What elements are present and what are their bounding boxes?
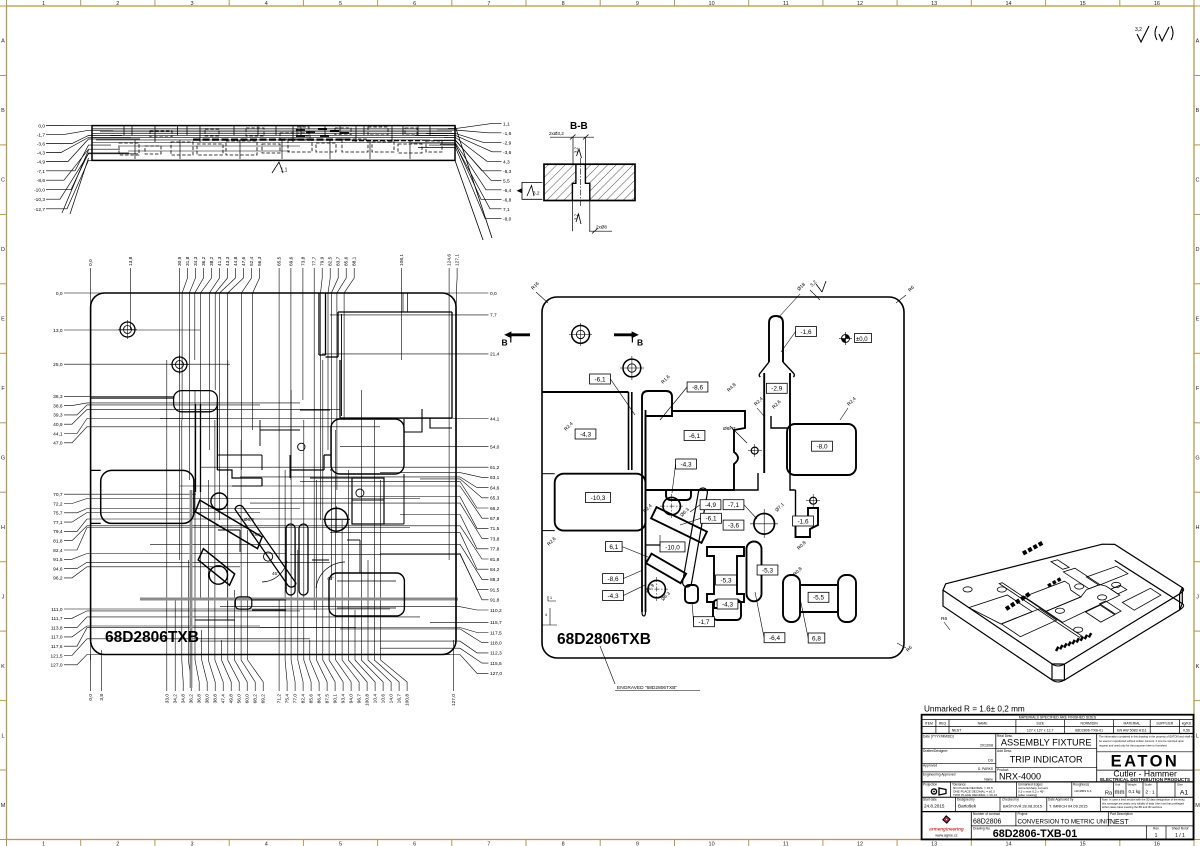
svg-text:Roughness: Roughness bbox=[1073, 782, 1090, 786]
svg-text:-4,3: -4,3 bbox=[607, 593, 618, 600]
svg-text:115,7: 115,7 bbox=[490, 620, 502, 626]
svg-text:71,5: 71,5 bbox=[490, 526, 500, 532]
svg-text:-6,1: -6,1 bbox=[705, 516, 716, 523]
svg-text:ENGRAVED "68D2806TXB": ENGRAVED "68D2806TXB" bbox=[617, 685, 677, 691]
svg-text:-8,0: -8,0 bbox=[816, 444, 827, 451]
svg-text:H: H bbox=[1, 525, 5, 531]
svg-text:1,1: 1,1 bbox=[281, 168, 288, 174]
svg-text:NEST: NEST bbox=[952, 728, 962, 732]
svg-text:88,1: 88,1 bbox=[352, 256, 358, 266]
svg-text:10,6: 10,6 bbox=[381, 694, 387, 704]
svg-text:NORM/DIN: NORM/DIN bbox=[1081, 721, 1099, 725]
svg-text:-7,1: -7,1 bbox=[37, 169, 46, 175]
svg-text:87,5: 87,5 bbox=[325, 694, 331, 704]
svg-text:36,3: 36,3 bbox=[53, 394, 63, 400]
svg-text:111,7: 111,7 bbox=[51, 616, 63, 622]
svg-text:B: B bbox=[1, 108, 5, 114]
svg-text:68,2: 68,2 bbox=[253, 694, 259, 704]
svg-text:C: C bbox=[1196, 178, 1200, 184]
svg-text:117,5: 117,5 bbox=[490, 630, 502, 636]
svg-text:this message are yearly on: this message are yearly only validity of… bbox=[1102, 801, 1184, 805]
svg-text:3: 3 bbox=[190, 1, 193, 7]
svg-text:REQ: REQ bbox=[939, 721, 947, 725]
svg-text:-7,1: -7,1 bbox=[728, 502, 739, 509]
svg-text:-1,6: -1,6 bbox=[800, 329, 811, 336]
svg-text:SUPPLIER: SUPPLIER bbox=[1156, 721, 1173, 725]
svg-text:5: 5 bbox=[339, 1, 342, 7]
svg-text:-4,3: -4,3 bbox=[680, 461, 691, 468]
svg-text:8: 8 bbox=[562, 842, 565, 846]
svg-text:4,3: 4,3 bbox=[503, 159, 510, 165]
svg-text:6: 6 bbox=[413, 842, 416, 846]
svg-text:64,6: 64,6 bbox=[490, 485, 500, 491]
svg-text:9: 9 bbox=[636, 1, 639, 7]
svg-text:-5,3: -5,3 bbox=[720, 577, 731, 584]
svg-text:127,0: 127,0 bbox=[50, 663, 62, 669]
svg-text:-3,6: -3,6 bbox=[37, 142, 46, 148]
svg-text:36,2: 36,2 bbox=[189, 694, 195, 704]
svg-text:Drafter/Designer:: Drafter/Designer: bbox=[923, 749, 948, 753]
svg-text:10: 10 bbox=[709, 1, 715, 7]
svg-text:-10,0: -10,0 bbox=[34, 188, 45, 194]
svg-text:14: 14 bbox=[1005, 1, 1011, 7]
svg-text:44,1: 44,1 bbox=[490, 416, 500, 422]
svg-text:H: H bbox=[1196, 525, 1200, 531]
svg-text:33,0: 33,0 bbox=[164, 694, 170, 704]
svg-text:13,8: 13,8 bbox=[128, 256, 134, 266]
svg-text:70,7: 70,7 bbox=[53, 492, 63, 498]
svg-text:Ø6H7: Ø6H7 bbox=[723, 426, 736, 432]
svg-text:24.8.2015: 24.8.2015 bbox=[924, 804, 945, 809]
svg-text:16: 16 bbox=[1154, 842, 1160, 846]
svg-text:47,4: 47,4 bbox=[221, 694, 227, 704]
svg-text:www.agme.cz: www.agme.cz bbox=[935, 834, 957, 838]
svg-text:12: 12 bbox=[857, 842, 863, 846]
svg-text:Name: Name bbox=[984, 778, 993, 782]
svg-text:ELECTRICAL DISTRIBUTION PRODUC: ELECTRICAL DISTRIBUTION PRODUCTS bbox=[1100, 777, 1190, 782]
svg-text:A: A bbox=[1, 39, 5, 45]
svg-text:67,8: 67,8 bbox=[490, 516, 500, 522]
svg-text:Rev: Rev bbox=[1153, 826, 1159, 830]
svg-text:5: 5 bbox=[339, 842, 342, 846]
svg-text:31,8: 31,8 bbox=[185, 256, 191, 266]
svg-text:3,2: 3,2 bbox=[1135, 27, 1142, 33]
svg-text:14: 14 bbox=[1005, 842, 1011, 846]
svg-text:-8,0: -8,0 bbox=[503, 216, 512, 222]
svg-text:-1,6: -1,6 bbox=[503, 131, 512, 137]
svg-text:-1,6: -1,6 bbox=[797, 518, 808, 525]
svg-text:-4,9: -4,9 bbox=[37, 160, 46, 166]
svg-text:D. PARKS: D. PARKS bbox=[978, 767, 994, 771]
svg-text:94,6: 94,6 bbox=[53, 566, 63, 572]
svg-text:mill ØRS 6,3: mill ØRS 6,3 bbox=[1074, 789, 1092, 793]
svg-text:73,8: 73,8 bbox=[300, 256, 306, 266]
svg-text:8: 8 bbox=[562, 1, 565, 7]
svg-text:93,4: 93,4 bbox=[341, 694, 347, 704]
svg-text:38,0: 38,0 bbox=[205, 694, 211, 704]
svg-text:84,2: 84,2 bbox=[490, 567, 500, 573]
svg-text:TRIP INDICATOR: TRIP INDICATOR bbox=[1010, 754, 1083, 764]
svg-text:117,6: 117,6 bbox=[51, 644, 63, 650]
svg-text:Project: Project bbox=[1018, 812, 1028, 816]
svg-text:-6,4: -6,4 bbox=[769, 635, 780, 642]
svg-text:127,0: 127,0 bbox=[451, 694, 457, 706]
svg-text:-10,3: -10,3 bbox=[591, 495, 606, 502]
svg-text:81,8: 81,8 bbox=[53, 539, 63, 545]
svg-text:-4,3: -4,3 bbox=[722, 601, 733, 608]
svg-text:armengineering: armengineering bbox=[929, 827, 964, 832]
svg-text:13: 13 bbox=[931, 842, 937, 846]
svg-text:41,3: 41,3 bbox=[217, 256, 223, 266]
svg-text:9: 9 bbox=[636, 842, 639, 846]
svg-text:D: D bbox=[1196, 247, 1200, 253]
svg-text:TWO PLACE DECIMAL = ±0,13: TWO PLACE DECIMAL = ±0,13 bbox=[953, 793, 997, 797]
svg-text:16,7: 16,7 bbox=[397, 694, 403, 704]
svg-text:91,8: 91,8 bbox=[490, 598, 500, 604]
svg-text:124,6: 124,6 bbox=[447, 254, 453, 266]
svg-text:71,2: 71,2 bbox=[277, 694, 283, 704]
svg-text:-2,9: -2,9 bbox=[503, 140, 512, 146]
svg-text:Add Desc.: Add Desc. bbox=[997, 749, 1012, 753]
svg-text:Bartošek: Bartošek bbox=[958, 804, 977, 809]
svg-text:56,3: 56,3 bbox=[257, 256, 263, 266]
svg-text:1: 1 bbox=[42, 1, 45, 7]
svg-text:77,7: 77,7 bbox=[312, 256, 318, 266]
svg-text:63,1: 63,1 bbox=[490, 475, 500, 481]
svg-text:C: C bbox=[1, 178, 5, 184]
svg-text:B: B bbox=[502, 338, 508, 348]
svg-text:L: L bbox=[1, 733, 4, 739]
svg-text:J: J bbox=[1196, 594, 1199, 600]
svg-text:-12,7: -12,7 bbox=[34, 207, 45, 213]
svg-text:73,8: 73,8 bbox=[490, 536, 500, 542]
svg-text:Date Approved by: Date Approved by bbox=[1048, 798, 1074, 802]
svg-text:-8,6: -8,6 bbox=[692, 384, 703, 391]
svg-text:7: 7 bbox=[487, 1, 490, 7]
svg-text:3,2: 3,2 bbox=[574, 214, 579, 220]
svg-text:39,3: 39,3 bbox=[53, 413, 63, 419]
svg-text:68D2806TXB: 68D2806TXB bbox=[105, 629, 199, 646]
svg-text:111,0: 111,0 bbox=[51, 607, 63, 613]
svg-text:-3,6: -3,6 bbox=[503, 150, 512, 156]
svg-text:121,5: 121,5 bbox=[50, 653, 62, 659]
svg-text:Scale: Scale bbox=[1145, 782, 1153, 786]
svg-text:38,2: 38,2 bbox=[209, 256, 215, 266]
svg-text:7,1: 7,1 bbox=[503, 207, 510, 213]
svg-text:Size: Size bbox=[1177, 782, 1183, 786]
svg-text:61,2: 61,2 bbox=[490, 465, 500, 471]
svg-text:EN AW 5083 H111: EN AW 5083 H111 bbox=[1117, 728, 1147, 732]
svg-text:0,0: 0,0 bbox=[56, 291, 63, 297]
svg-text:Unmarked R = 1.6± 0,2 mm: Unmarked R = 1.6± 0,2 mm bbox=[924, 705, 1025, 714]
svg-text:E: E bbox=[1196, 317, 1200, 323]
svg-text:-4,3: -4,3 bbox=[580, 431, 591, 438]
svg-text:E: E bbox=[1, 317, 5, 323]
svg-text:M: M bbox=[1, 803, 6, 809]
svg-text:117,0: 117,0 bbox=[51, 635, 63, 641]
svg-text:75,7: 75,7 bbox=[53, 511, 63, 517]
svg-text:K: K bbox=[1196, 664, 1200, 670]
svg-text:52,4: 52,4 bbox=[249, 256, 255, 266]
svg-text:Checked by: Checked by bbox=[1002, 798, 1019, 802]
svg-text:Number of contract: Number of contract bbox=[973, 812, 1000, 816]
svg-text:either cases have meeting: either cases have meeting the 8D and 3D … bbox=[1102, 805, 1163, 809]
svg-text:-6,1: -6,1 bbox=[689, 433, 700, 440]
svg-text:40,9: 40,9 bbox=[53, 422, 63, 428]
svg-text:K: K bbox=[1, 664, 5, 670]
svg-text:86,4: 86,4 bbox=[317, 694, 323, 704]
svg-text:77,1: 77,1 bbox=[53, 520, 63, 526]
svg-text:110,2: 110,2 bbox=[490, 608, 502, 614]
svg-text:0,1 kg: 0,1 kg bbox=[1129, 789, 1142, 794]
svg-text:72,2: 72,2 bbox=[53, 501, 63, 507]
svg-text:112,3: 112,3 bbox=[490, 651, 502, 657]
svg-text:1,1: 1,1 bbox=[503, 121, 510, 127]
svg-text:13: 13 bbox=[931, 1, 937, 7]
svg-text:13,0: 13,0 bbox=[53, 328, 63, 334]
svg-text:7,7: 7,7 bbox=[490, 313, 497, 319]
svg-text:SIZE: SIZE bbox=[1036, 721, 1044, 725]
svg-text:2xØ8: 2xØ8 bbox=[596, 225, 607, 230]
svg-text:77,8: 77,8 bbox=[490, 547, 500, 553]
svg-text:B: B bbox=[1196, 108, 1200, 114]
svg-text:Start date: Start date bbox=[923, 798, 937, 802]
svg-text:Date [YYYY/MM/DD]: Date [YYYY/MM/DD] bbox=[923, 735, 954, 739]
svg-text:6,1: 6,1 bbox=[609, 544, 618, 551]
svg-text:-10,0: -10,0 bbox=[665, 544, 680, 551]
svg-text:-3,6: -3,6 bbox=[728, 523, 739, 530]
svg-text:-5,3: -5,3 bbox=[762, 567, 773, 574]
svg-text:10: 10 bbox=[709, 842, 715, 846]
svg-text:79,4: 79,4 bbox=[53, 529, 63, 535]
svg-text:-4,9: -4,9 bbox=[705, 502, 716, 509]
svg-text:3: 3 bbox=[190, 842, 193, 846]
svg-text:0,0: 0,0 bbox=[88, 694, 94, 701]
svg-text:-5,5: -5,5 bbox=[813, 595, 824, 602]
svg-text:47,0: 47,0 bbox=[53, 441, 63, 447]
svg-text:MATERIAL: MATERIAL bbox=[1124, 721, 1141, 725]
svg-text:M: M bbox=[1195, 803, 1200, 809]
svg-text:The information contained i: The information contained in this drawin… bbox=[1099, 735, 1195, 739]
svg-text:44,8: 44,8 bbox=[233, 256, 239, 266]
svg-text:12: 12 bbox=[857, 1, 863, 7]
svg-text:47,6: 47,6 bbox=[241, 256, 247, 266]
svg-text:85,6: 85,6 bbox=[344, 256, 350, 266]
svg-text:100,8: 100,8 bbox=[405, 694, 411, 706]
svg-text:34,3: 34,3 bbox=[193, 256, 199, 266]
svg-text:-8,6: -8,6 bbox=[607, 576, 618, 583]
svg-text:108,1: 108,1 bbox=[399, 254, 405, 266]
svg-text:11: 11 bbox=[783, 842, 789, 846]
svg-text:54,0: 54,0 bbox=[490, 445, 500, 451]
svg-text:CONVERSION TO METRIC UNIT: CONVERSION TO METRIC UNIT bbox=[1018, 819, 1111, 826]
svg-text:38,8: 38,8 bbox=[213, 694, 219, 704]
svg-text:68D2806-TXB-01: 68D2806-TXB-01 bbox=[993, 828, 1078, 840]
svg-text:91,5: 91,5 bbox=[53, 557, 63, 563]
svg-text:2: 2 bbox=[116, 842, 119, 846]
svg-text:49,8: 49,8 bbox=[229, 694, 235, 704]
svg-text:Weight: Weight bbox=[1128, 782, 1137, 786]
svg-text:3,8: 3,8 bbox=[99, 694, 105, 701]
svg-text:NAME: NAME bbox=[978, 721, 989, 725]
svg-text:0,0: 0,0 bbox=[38, 124, 45, 130]
svg-text:NRX-4000: NRX-4000 bbox=[999, 771, 1041, 781]
svg-text:11: 11 bbox=[783, 1, 789, 7]
svg-text:-5,3: -5,3 bbox=[503, 169, 512, 175]
svg-text:36,8: 36,8 bbox=[197, 694, 203, 704]
svg-text:88,3: 88,3 bbox=[490, 577, 500, 583]
svg-text:56,0: 56,0 bbox=[237, 694, 243, 704]
svg-text:25,0: 25,0 bbox=[53, 362, 63, 368]
svg-text:±0,0: ±0,0 bbox=[856, 337, 868, 343]
svg-text:3,2: 3,2 bbox=[533, 191, 540, 196]
svg-text:B: B bbox=[637, 338, 643, 348]
svg-text:79,9: 79,9 bbox=[320, 256, 326, 266]
svg-text:ITEM: ITEM bbox=[925, 721, 933, 725]
svg-text:14,0: 14,0 bbox=[389, 694, 395, 704]
svg-text:Approved: Approved bbox=[923, 764, 937, 768]
svg-text:65,5: 65,5 bbox=[277, 256, 283, 266]
svg-text:1: 1 bbox=[42, 842, 45, 846]
svg-text:127,1: 127,1 bbox=[455, 254, 461, 266]
svg-text:-6,1: -6,1 bbox=[594, 376, 605, 383]
svg-text:34,8: 34,8 bbox=[181, 694, 187, 704]
svg-text:100,8: 100,8 bbox=[365, 694, 371, 706]
svg-text:81,8: 81,8 bbox=[490, 557, 500, 563]
svg-text:68D2806-TXB-01: 68D2806-TXB-01 bbox=[1075, 728, 1103, 732]
svg-text:(after coating): (after coating) bbox=[1018, 793, 1037, 797]
svg-text:Engineering Approved: Engineering Approved bbox=[923, 773, 956, 777]
svg-text:2 : 1: 2 : 1 bbox=[1145, 789, 1155, 795]
svg-text:10,4: 10,4 bbox=[373, 694, 379, 704]
svg-text:15: 15 bbox=[1080, 1, 1086, 7]
svg-text:15: 15 bbox=[1080, 842, 1086, 846]
svg-text:30,9: 30,9 bbox=[177, 256, 183, 266]
svg-text:J: J bbox=[2, 594, 5, 600]
svg-text:Ø6,3: Ø6,3 bbox=[244, 517, 254, 522]
svg-text:0,0: 0,0 bbox=[490, 291, 497, 297]
svg-text:Projection: Projection bbox=[923, 782, 937, 786]
svg-text:75,4: 75,4 bbox=[285, 694, 291, 704]
svg-text:90,1: 90,1 bbox=[333, 694, 339, 704]
svg-text:-1,7: -1,7 bbox=[37, 132, 46, 138]
svg-text:3,2: 3,2 bbox=[574, 147, 579, 153]
svg-text:7: 7 bbox=[487, 842, 490, 846]
svg-text:T. IMRICH 04.09.2015: T. IMRICH 04.09.2015 bbox=[1049, 804, 1088, 809]
svg-text:2xØ3,2: 2xØ3,2 bbox=[549, 131, 564, 136]
svg-text:-1,7: -1,7 bbox=[698, 619, 709, 626]
svg-text:-6,8: -6,8 bbox=[503, 197, 512, 203]
svg-text:D: D bbox=[1, 247, 5, 253]
svg-text:115,5: 115,5 bbox=[490, 661, 502, 667]
svg-text:Designed by: Designed by bbox=[957, 798, 975, 802]
svg-text:36,2: 36,2 bbox=[201, 256, 207, 266]
svg-text:113,8: 113,8 bbox=[51, 625, 63, 631]
svg-text:NEST: NEST bbox=[1110, 819, 1129, 826]
svg-text:66,2: 66,2 bbox=[490, 506, 500, 512]
svg-text:ASSEMBLY FIXTURE: ASSEMBLY FIXTURE bbox=[1001, 737, 1092, 747]
svg-text:91,5: 91,5 bbox=[490, 587, 500, 593]
svg-text:DS: DS bbox=[988, 759, 994, 763]
svg-text:6: 6 bbox=[413, 1, 416, 7]
svg-text:-2,9: -2,9 bbox=[771, 386, 782, 393]
svg-text:-6,4: -6,4 bbox=[503, 188, 512, 194]
svg-text:43,3: 43,3 bbox=[225, 256, 231, 266]
svg-text:69,6: 69,6 bbox=[288, 256, 294, 266]
svg-text:94,0: 94,0 bbox=[349, 694, 355, 704]
svg-text:82,5: 82,5 bbox=[328, 256, 334, 266]
svg-text:0,56: 0,56 bbox=[1183, 728, 1190, 732]
svg-text:-10,3: -10,3 bbox=[34, 197, 45, 203]
svg-text:85,6: 85,6 bbox=[309, 694, 315, 704]
svg-text:L: L bbox=[1196, 733, 1199, 739]
svg-text:2013/08: 2013/08 bbox=[980, 744, 993, 748]
svg-text:Unit: Unit bbox=[1115, 782, 1120, 786]
svg-text:96,2: 96,2 bbox=[53, 576, 63, 582]
svg-text:18,5: 18,5 bbox=[252, 532, 261, 537]
svg-text:-4,3: -4,3 bbox=[37, 151, 46, 157]
svg-text:6,8: 6,8 bbox=[812, 635, 821, 642]
svg-text:68D2806TXB: 68D2806TXB bbox=[557, 631, 651, 648]
svg-text:127 x 127 x 12,7: 127 x 127 x 12,7 bbox=[1027, 728, 1054, 732]
svg-text:96,7: 96,7 bbox=[357, 694, 363, 704]
svg-text:4: 4 bbox=[265, 842, 268, 846]
svg-text:Part Description: Part Description bbox=[1110, 812, 1133, 816]
svg-text:65,3: 65,3 bbox=[490, 496, 500, 502]
svg-text:R6: R6 bbox=[941, 616, 947, 622]
svg-text:82,4: 82,4 bbox=[53, 548, 63, 554]
svg-text:45°: 45° bbox=[272, 571, 279, 576]
svg-text:16: 16 bbox=[1154, 1, 1160, 7]
svg-text:be used or reproduced with: be used or reproduced without written co… bbox=[1099, 739, 1185, 743]
svg-text:44,1: 44,1 bbox=[53, 431, 63, 437]
svg-text:34,2: 34,2 bbox=[173, 694, 179, 704]
svg-text:mm: mm bbox=[1115, 790, 1125, 796]
svg-text:BAŠTOVÁ 28.08.2015: BAŠTOVÁ 28.08.2015 bbox=[1003, 804, 1042, 809]
svg-text:request and used only for: request and used only for the purposes h… bbox=[1099, 744, 1168, 748]
svg-text:69,2: 69,2 bbox=[261, 694, 267, 704]
svg-text:2: 2 bbox=[116, 1, 119, 7]
svg-text:45°: 45° bbox=[327, 576, 334, 581]
svg-text:G: G bbox=[1195, 456, 1199, 462]
svg-text:68D2806: 68D2806 bbox=[973, 819, 1002, 826]
svg-text:Ra: Ra bbox=[1105, 791, 1113, 797]
svg-text:B-B: B-B bbox=[570, 121, 588, 132]
svg-text:77,0: 77,0 bbox=[293, 694, 299, 704]
svg-text:118,0: 118,0 bbox=[490, 641, 502, 647]
svg-text:Drawing No.: Drawing No. bbox=[973, 827, 991, 831]
svg-text:Note: In case a third section: Note: In case a third section with the 3… bbox=[1102, 798, 1185, 802]
svg-text:127,0: 127,0 bbox=[490, 671, 502, 677]
svg-text:4: 4 bbox=[265, 1, 268, 7]
svg-text:21,4: 21,4 bbox=[490, 352, 500, 358]
svg-text:83,7: 83,7 bbox=[336, 256, 342, 266]
svg-text:kg/KS: kg/KS bbox=[1182, 721, 1192, 725]
svg-text:A1: A1 bbox=[1180, 789, 1189, 796]
svg-text:0,0: 0,0 bbox=[88, 259, 94, 266]
svg-text:38,6: 38,6 bbox=[53, 403, 63, 409]
svg-text:60,0: 60,0 bbox=[245, 694, 251, 704]
svg-text:-8,6: -8,6 bbox=[37, 178, 46, 184]
svg-text:82,4: 82,4 bbox=[301, 694, 307, 704]
svg-text:G: G bbox=[1, 456, 5, 462]
svg-text:MATERIALS SPECIFIED ARE FINISH: MATERIALS SPECIFIED ARE FINISHED SIZES bbox=[1019, 715, 1097, 719]
svg-text:1: 1 bbox=[1155, 833, 1158, 839]
svg-text:1 / 1: 1 / 1 bbox=[1175, 833, 1185, 839]
svg-text:5,5: 5,5 bbox=[503, 178, 510, 184]
svg-text:Sheet No/of: Sheet No/of bbox=[1172, 826, 1189, 830]
svg-text:A: A bbox=[1196, 39, 1200, 45]
